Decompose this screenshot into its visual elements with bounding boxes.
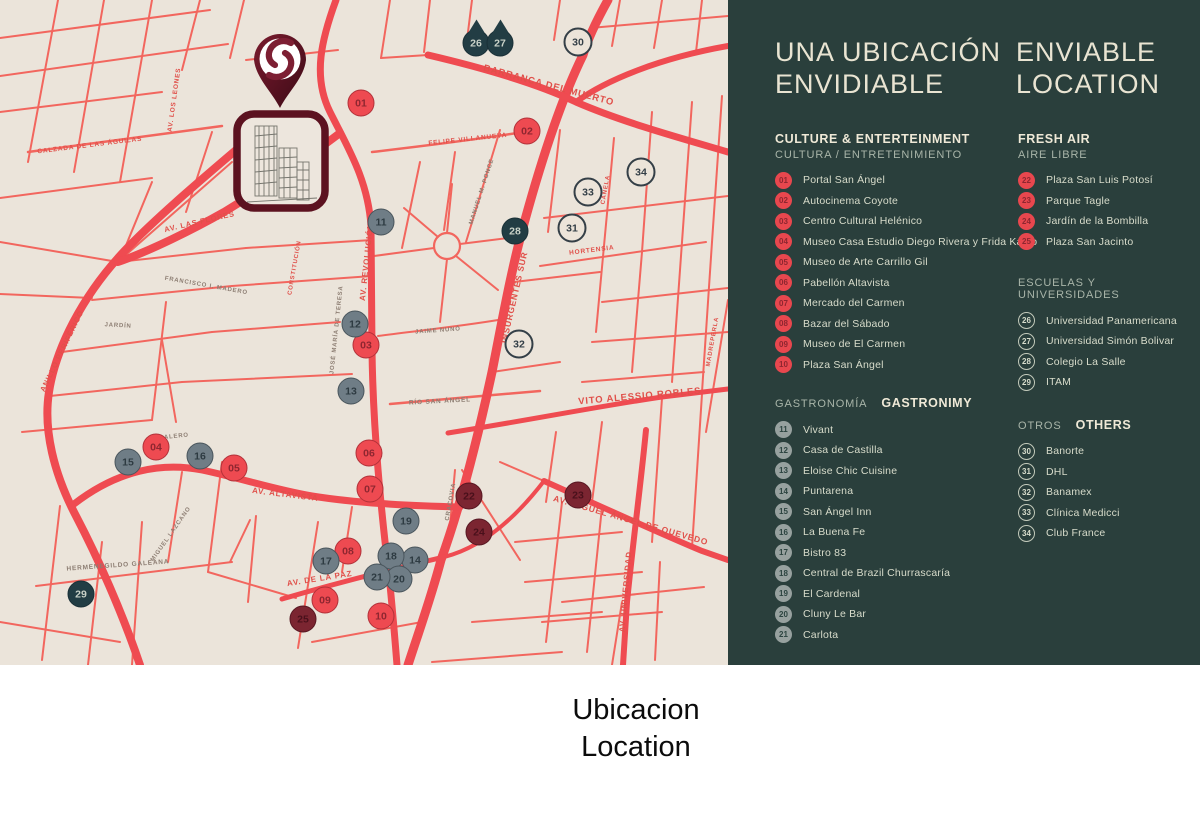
- legend-item-31: 31 DHL: [1018, 463, 1177, 480]
- map-marker-12: 12: [342, 311, 369, 338]
- street-label: BARRANCA DEL MUERTO: [482, 63, 615, 109]
- map-marker-16: 16: [187, 443, 214, 470]
- legend-item-29: 29 ITAM: [1018, 374, 1177, 391]
- legend-badge: 15: [775, 503, 792, 520]
- legend-item-20: 20 Cluny Le Bar: [775, 606, 1018, 623]
- legend-item-12: 12 Casa de Castilla: [775, 442, 1018, 459]
- street-label: AV. UNIVERSIDAD: [617, 551, 633, 633]
- map-marker-30: 30: [564, 28, 593, 57]
- legend-item-label: Puntarena: [803, 485, 853, 497]
- legend-badge: 01: [775, 172, 792, 189]
- legend-badge: 10: [775, 356, 792, 373]
- legend-section-fresh-air: FRESH AIR AIRE LIBRE 22 Plaza San Luis P…: [1018, 132, 1177, 251]
- street-label: CONSTITUCIÓN: [285, 240, 302, 296]
- legend-item-label: Banamex: [1046, 486, 1092, 498]
- marker-number: 11: [375, 216, 386, 228]
- legend-badge: 33: [1018, 504, 1035, 521]
- location-infographic: CALZADA DE LAS ÁGUILASAV. LOS LEONESBARR…: [0, 0, 1200, 828]
- map-marker-33: 33: [574, 178, 603, 207]
- marker-number: 12: [349, 318, 361, 330]
- caption-line-en: Location: [336, 729, 936, 766]
- legend-badge: 22: [1018, 172, 1035, 189]
- legend-badge: 24: [1018, 213, 1035, 230]
- marker-number: 08: [342, 545, 354, 557]
- legend-item-label: ITAM: [1046, 376, 1071, 388]
- legend-item-label: Pabellón Altavista: [803, 277, 890, 289]
- marker-number: 17: [320, 555, 332, 567]
- legend-item-33: 33 Clínica Medicci: [1018, 504, 1177, 521]
- legend-item-label: Museo de Arte Carrillo Gil: [803, 256, 928, 268]
- legend-badge: 21: [775, 626, 792, 643]
- legend-item-label: Universidad Simón Bolivar: [1046, 335, 1174, 347]
- marker-number: 21: [371, 571, 383, 583]
- legend-item-06: 06 Pabellón Altavista: [775, 274, 1018, 291]
- section-subheader: ESCUELAS Y UNIVERSIDADES: [1018, 277, 1177, 301]
- legend-column-0: CULTURE & ENTERTEINMENT CULTURA / ENTRET…: [775, 132, 1018, 644]
- legend-item-17: 17 Bistro 83: [775, 544, 1018, 561]
- panel-title-es: UNA UBICACIÓN ENVIDIABLE: [775, 36, 1001, 101]
- panel-title-en: ENVIABLE LOCATION: [1016, 36, 1160, 101]
- legend-item-11: 11 Vivant: [775, 421, 1018, 438]
- legend-section-gastronomy: GASTRONOMÍA GASTRONIMY 11 Vivant 12 Casa…: [775, 396, 1018, 643]
- marker-number: 26: [470, 37, 482, 49]
- section-subheader: CULTURA / ENTRETENIMIENTO: [775, 149, 1018, 161]
- street-label: RÍO SAN ÁNGEL: [409, 394, 471, 406]
- section-header: FRESH AIR: [1018, 132, 1177, 146]
- legend-item-label: Universidad Panamericana: [1046, 315, 1177, 327]
- section-header: OTHERS: [1076, 418, 1132, 432]
- legend-item-10: 10 Plaza San Ángel: [775, 356, 1018, 373]
- marker-number: 33: [582, 186, 594, 198]
- legend-item-label: Cluny Le Bar: [803, 608, 866, 620]
- street-label: JARDÍN: [104, 320, 132, 329]
- legend-badge: 07: [775, 295, 792, 312]
- legend-badge: 16: [775, 524, 792, 541]
- legend-badge: 23: [1018, 192, 1035, 209]
- legend-item-label: Bistro 83: [803, 547, 846, 559]
- map-marker-26: 26: [463, 30, 490, 57]
- legend-item-label: Mercado del Carmen: [803, 297, 905, 309]
- legend-item-label: El Cardenal: [803, 588, 860, 600]
- marker-number: 20: [393, 573, 405, 585]
- map-marker-07: 07: [357, 476, 384, 503]
- map-marker-06: 06: [356, 440, 383, 467]
- map-marker-23: 23: [565, 482, 592, 509]
- marker-number: 30: [572, 36, 584, 48]
- legend-item-label: Clínica Medicci: [1046, 507, 1120, 519]
- marker-number: 18: [385, 550, 397, 562]
- legend-badge: 34: [1018, 525, 1035, 542]
- section-subheader: OTROS: [1018, 420, 1062, 432]
- legend-badge: 27: [1018, 333, 1035, 350]
- map-marker-24: 24: [466, 519, 493, 546]
- legend-item-32: 32 Banamex: [1018, 484, 1177, 501]
- map-area: CALZADA DE LAS ÁGUILASAV. LOS LEONESBARR…: [0, 0, 728, 665]
- marker-number: 23: [572, 489, 584, 501]
- legend-item-01: 01 Portal San Ángel: [775, 172, 1018, 189]
- legend-columns: CULTURE & ENTERTEINMENT CULTURA / ENTRET…: [775, 132, 1160, 644]
- section-subheader: AIRE LIBRE: [1018, 149, 1177, 161]
- legend-column-1: FRESH AIR AIRE LIBRE 22 Plaza San Luis P…: [1018, 132, 1177, 644]
- marker-number: 31: [566, 222, 578, 234]
- map-marker-25: 25: [290, 606, 317, 633]
- legend-badge: 30: [1018, 443, 1035, 460]
- map-marker-13: 13: [338, 378, 365, 405]
- map-marker-01: 01: [348, 90, 375, 117]
- legend-badge: 08: [775, 315, 792, 332]
- street-label: ANILLO PERIFÉRICO: [38, 309, 85, 393]
- legend-item-label: Autocinema Coyote: [803, 195, 898, 207]
- legend-badge: 26: [1018, 312, 1035, 329]
- legend-badge: 03: [775, 213, 792, 230]
- legend-item-26: 26 Universidad Panamericana: [1018, 312, 1177, 329]
- project-logo-pin: [252, 30, 308, 113]
- map-marker-02: 02: [514, 118, 541, 145]
- map-marker-27: 27: [487, 30, 514, 57]
- legend-item-28: 28 Colegio La Salle: [1018, 353, 1177, 370]
- legend-item-label: Central de Brazil Churrascaría: [803, 567, 950, 579]
- legend-section-culture: CULTURE & ENTERTEINMENT CULTURA / ENTRET…: [775, 132, 1018, 374]
- legend-badge: 29: [1018, 374, 1035, 391]
- legend-badge: 05: [775, 254, 792, 271]
- marker-number: 16: [194, 450, 206, 462]
- marker-number: 27: [494, 37, 506, 49]
- legend-item-14: 14 Puntarena: [775, 483, 1018, 500]
- legend-item-18: 18 Central de Brazil Churrascaría: [775, 565, 1018, 582]
- map-marker-09: 09: [312, 587, 339, 614]
- legend-item-09: 09 Museo de El Carmen: [775, 336, 1018, 353]
- marker-number: 05: [228, 462, 240, 474]
- map-marker-10: 10: [368, 603, 395, 630]
- legend-item-label: Bazar del Sábado: [803, 318, 890, 330]
- legend-badge: 09: [775, 336, 792, 353]
- marker-number: 10: [375, 610, 387, 622]
- legend-item-15: 15 San Ángel Inn: [775, 503, 1018, 520]
- marker-number: 09: [319, 594, 331, 606]
- map-marker-04: 04: [143, 434, 170, 461]
- legend-badge: 17: [775, 544, 792, 561]
- legend-section-others: OTROS OTHERS 30 Banorte 31 DHL 32 Baname…: [1018, 418, 1177, 542]
- legend-item-02: 02 Autocinema Coyote: [775, 192, 1018, 209]
- legend-item-label: Portal San Ángel: [803, 174, 885, 186]
- caption: Ubicacion Location: [336, 692, 936, 766]
- legend-badge: 25: [1018, 233, 1035, 250]
- street-label: MIGUEL LAZCANO: [150, 506, 192, 563]
- marker-number: 14: [409, 554, 421, 566]
- map-marker-17: 17: [313, 548, 340, 575]
- map-marker-29: 29: [68, 581, 95, 608]
- map-marker-05: 05: [221, 455, 248, 482]
- marker-number: 34: [635, 166, 647, 178]
- legend-item-19: 19 El Cardenal: [775, 585, 1018, 602]
- section-subheader: GASTRONOMÍA: [775, 398, 867, 410]
- legend-badge: 14: [775, 483, 792, 500]
- legend-item-label: Plaza San Ángel: [803, 359, 884, 371]
- legend-item-label: Museo de El Carmen: [803, 338, 905, 350]
- legend-badge: 12: [775, 442, 792, 459]
- legend-panel: UNA UBICACIÓN ENVIDIABLE ENVIABLE LOCATI…: [728, 0, 1200, 665]
- marker-number: 03: [360, 339, 372, 351]
- street-label: VITO ALESSIO ROBLES: [578, 386, 702, 408]
- street-label: JAIME NUNÓ: [415, 324, 461, 335]
- legend-badge: 13: [775, 462, 792, 479]
- panel-title-row: UNA UBICACIÓN ENVIDIABLE ENVIABLE LOCATI…: [775, 36, 1160, 101]
- marker-number: 32: [513, 338, 525, 350]
- legend-item-24: 24 Jardín de la Bombilla: [1018, 213, 1177, 230]
- legend-item-label: Plaza San Luis Potosí: [1046, 174, 1153, 186]
- legend-item-27: 27 Universidad Simón Bolivar: [1018, 333, 1177, 350]
- legend-item-21: 21 Carlota: [775, 626, 1018, 643]
- legend-item-label: Plaza San Jacinto: [1046, 236, 1133, 248]
- legend-item-03: 03 Centro Cultural Helénico: [775, 213, 1018, 230]
- legend-item-07: 07 Mercado del Carmen: [775, 295, 1018, 312]
- map-marker-11: 11: [368, 209, 395, 236]
- caption-line-es: Ubicacion: [336, 692, 936, 729]
- map-marker-22: 22: [456, 483, 483, 510]
- map-marker-31: 31: [558, 214, 587, 243]
- legend-item-13: 13 Eloise Chic Cuisine: [775, 462, 1018, 479]
- legend-badge: 18: [775, 565, 792, 582]
- marker-number: 07: [364, 483, 376, 495]
- map-marker-32: 32: [505, 330, 534, 359]
- marker-number: 04: [150, 441, 162, 453]
- legend-item-label: Banorte: [1046, 445, 1084, 457]
- street-label: HORTENSIA: [569, 244, 615, 256]
- legend-badge: 31: [1018, 463, 1035, 480]
- legend-badge: 02: [775, 192, 792, 209]
- map-marker-28: 28: [502, 218, 529, 245]
- legend-item-25: 25 Plaza San Jacinto: [1018, 233, 1177, 250]
- legend-item-label: Casa de Castilla: [803, 444, 883, 456]
- legend-item-08: 08 Bazar del Sábado: [775, 315, 1018, 332]
- legend-item-label: Museo Casa Estudio Diego Rivera y Frida …: [803, 236, 1037, 248]
- marker-number: 28: [509, 225, 521, 237]
- legend-item-22: 22 Plaza San Luis Potosí: [1018, 172, 1177, 189]
- legend-badge: 11: [775, 421, 792, 438]
- marker-number: 06: [363, 447, 375, 459]
- legend-item-label: Vivant: [803, 424, 833, 436]
- section-header: GASTRONIMY: [881, 396, 972, 410]
- legend-item-label: Jardín de la Bombilla: [1046, 215, 1148, 227]
- legend-item-34: 34 Club France: [1018, 525, 1177, 542]
- map-marker-15: 15: [115, 449, 142, 476]
- legend-badge: 32: [1018, 484, 1035, 501]
- project-building-box: [233, 110, 329, 217]
- tree-icon: [492, 20, 508, 33]
- legend-badge: 20: [775, 606, 792, 623]
- marker-number: 24: [473, 526, 485, 538]
- street-label: HERMENEGILDO GALEANA: [66, 558, 169, 572]
- legend-item-04: 04 Museo Casa Estudio Diego Rivera y Fri…: [775, 233, 1018, 250]
- legend-item-16: 16 La Buena Fe: [775, 524, 1018, 541]
- marker-number: 15: [122, 456, 134, 468]
- legend-badge: 04: [775, 233, 792, 250]
- legend-item-label: Centro Cultural Helénico: [803, 215, 922, 227]
- marker-number: 13: [345, 385, 357, 397]
- marker-number: 22: [463, 490, 475, 502]
- section-header: CULTURE & ENTERTEINMENT: [775, 132, 1018, 146]
- marker-number: 01: [355, 97, 367, 109]
- marker-number: 29: [75, 588, 87, 600]
- legend-item-label: La Buena Fe: [803, 526, 865, 538]
- map-marker-19: 19: [393, 508, 420, 535]
- street-label: AV. LOS LEONES: [167, 67, 183, 132]
- legend-item-30: 30 Banorte: [1018, 443, 1177, 460]
- legend-item-label: DHL: [1046, 466, 1068, 478]
- map-marker-34: 34: [627, 158, 656, 187]
- marker-number: 25: [297, 613, 309, 625]
- legend-section-schools: ESCUELAS Y UNIVERSIDADES 26 Universidad …: [1018, 277, 1177, 391]
- legend-item-label: Club France: [1046, 527, 1105, 539]
- legend-badge: 06: [775, 274, 792, 291]
- legend-item-label: Colegio La Salle: [1046, 356, 1126, 368]
- legend-item-label: San Ángel Inn: [803, 506, 872, 518]
- legend-item-23: 23 Parque Tagle: [1018, 192, 1177, 209]
- legend-badge: 19: [775, 585, 792, 602]
- legend-item-05: 05 Museo de Arte Carrillo Gil: [775, 254, 1018, 271]
- marker-number: 19: [400, 515, 412, 527]
- legend-item-label: Carlota: [803, 629, 838, 641]
- legend-badge: 28: [1018, 353, 1035, 370]
- legend-item-label: Eloise Chic Cuisine: [803, 465, 897, 477]
- street-label: MANUEL M. PONCE: [469, 158, 496, 225]
- marker-number: 02: [521, 125, 533, 137]
- legend-item-label: Parque Tagle: [1046, 195, 1110, 207]
- tree-icon: [468, 20, 484, 33]
- map-marker-21: 21: [364, 564, 391, 591]
